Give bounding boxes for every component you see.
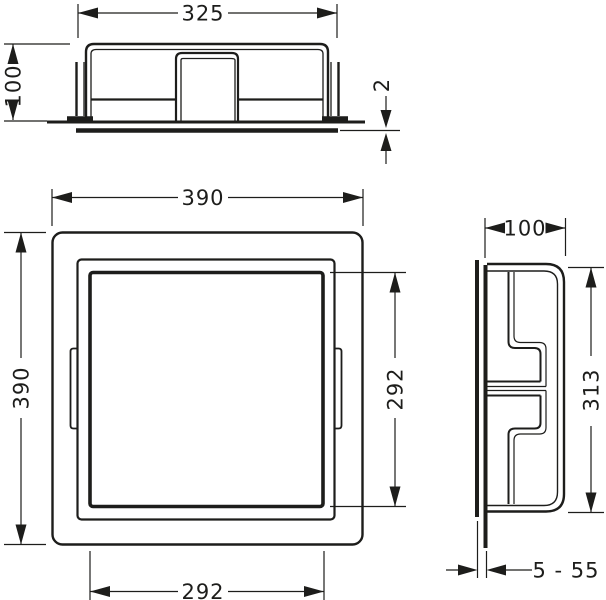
top-view-body-outline (77, 44, 339, 121)
side-view-body-inner-contour (487, 271, 558, 506)
side-view-body-outer-contour (487, 264, 564, 512)
dim-label-front-opening-width: 292 (181, 580, 224, 600)
front-view-dimension-arrows (16, 192, 401, 597)
side-view-flange-and-front-face (477, 260, 486, 548)
front-view-opening (90, 273, 323, 507)
top-view-center-box (91, 53, 323, 121)
technical-drawing-canvas: 325 100 2 390 390 292 292 100 313 5 - 55 (0, 0, 606, 600)
dim-label-mounting-range: 5 - 55 (532, 559, 599, 583)
dim-label-side-height: 313 (580, 368, 604, 411)
side-view-profile-steps-inner (487, 272, 546, 504)
dim-label-flange-thickness: 2 (370, 78, 394, 92)
top-view-inner-edges (84, 50, 331, 122)
top-view: 325 100 2 (2, 2, 401, 165)
dim-label-top-width: 325 (181, 2, 224, 26)
front-view: 390 390 292 292 (4, 186, 408, 600)
dim-label-side-depth: 100 (503, 217, 546, 241)
side-view: 100 313 5 - 55 (446, 217, 604, 583)
dimension-drawing-page: 325 100 2 390 390 292 292 100 313 5 - 55 (0, 0, 606, 600)
top-view-dimension-lines (4, 4, 400, 164)
front-view-outer-frame (53, 233, 363, 545)
dim-label-front-outer-height: 390 (10, 366, 34, 409)
dim-label-front-opening-height: 292 (384, 367, 408, 410)
dim-label-top-height: 100 (2, 64, 26, 107)
dim-label-front-outer-width: 390 (181, 186, 224, 210)
front-view-middle-frame (78, 260, 335, 520)
front-view-side-clips (71, 349, 342, 429)
front-view-dimension-lines (4, 189, 406, 600)
